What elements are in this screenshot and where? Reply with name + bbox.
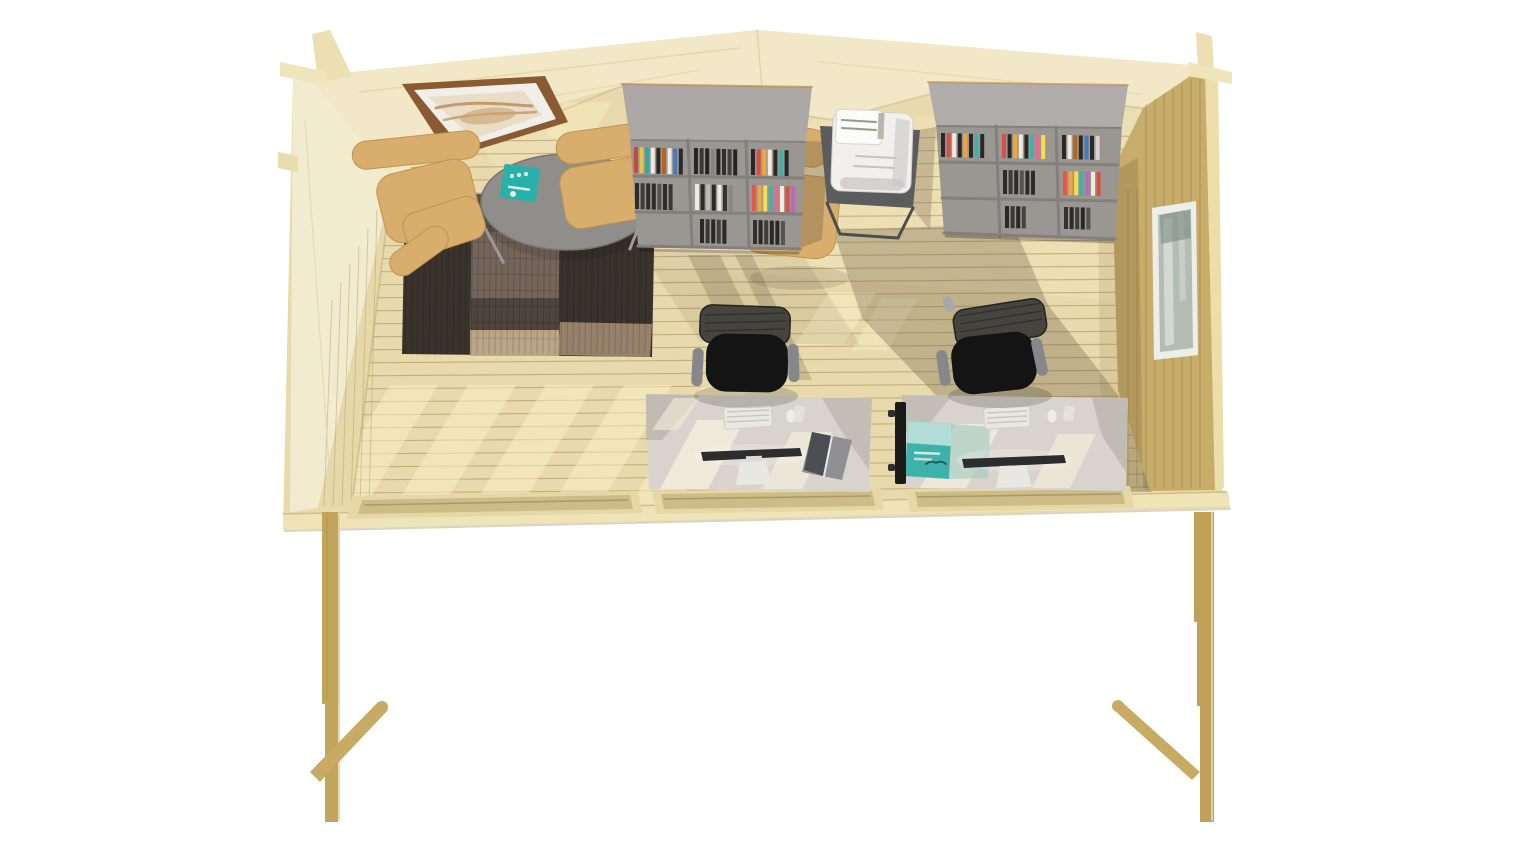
office-chair-seat (949, 330, 1039, 396)
book-spine (758, 185, 762, 211)
book-spine (980, 134, 984, 158)
book-spine (1005, 206, 1009, 228)
book-spine (1070, 207, 1074, 229)
mouse (1048, 410, 1057, 423)
window-glass-dark-top (1160, 210, 1191, 244)
book-row (1064, 207, 1090, 230)
book-spine (701, 184, 705, 210)
book-spine (733, 149, 737, 175)
book-spine (762, 149, 766, 175)
book-spine (773, 150, 777, 176)
office-chair-seat (706, 333, 789, 392)
office-chair-armrest (787, 344, 799, 382)
support-post-left-upper (322, 512, 340, 704)
book-spine (1016, 206, 1020, 228)
booklet-logo (510, 191, 516, 197)
book-spine (711, 219, 715, 243)
booklet-icon-dot (524, 172, 528, 176)
book-spine (790, 150, 794, 176)
book-row (700, 219, 726, 244)
book-spine (975, 134, 979, 158)
book-spine (679, 149, 683, 175)
book-row (695, 184, 733, 211)
book-spine (1014, 170, 1018, 194)
book-spine (640, 147, 644, 173)
book-row (634, 147, 683, 175)
front-window-sill-inner (661, 491, 875, 509)
book-spine (1031, 171, 1035, 195)
book-spine (641, 183, 645, 209)
book-spine (646, 183, 650, 209)
printer-bottom-shade (840, 177, 904, 191)
divider-foot (888, 464, 895, 471)
book-spine (729, 185, 733, 211)
shelf-board (634, 176, 803, 178)
book-spine (1025, 171, 1029, 195)
book-spine (781, 221, 785, 245)
book-spine (645, 147, 649, 173)
book-row (1063, 171, 1101, 196)
book-spine (774, 186, 778, 212)
book-spine (1036, 135, 1040, 159)
book-spine (695, 184, 699, 210)
book-spine (752, 185, 756, 211)
booklet-icon-dot (517, 173, 521, 177)
book-spine (1091, 172, 1095, 196)
render-viewport (0, 0, 1536, 864)
book-spine (1084, 136, 1088, 160)
scene-svg (0, 0, 1536, 864)
book-spine (722, 220, 726, 244)
book-spine (705, 148, 709, 174)
book-spine (656, 148, 660, 174)
book-spine (711, 149, 715, 175)
shelf-right-top (928, 82, 1128, 127)
office-chair-armrest (691, 348, 704, 387)
book-spine (969, 134, 973, 158)
book-spine (700, 219, 704, 243)
book-spine (634, 147, 638, 173)
book-spine (1041, 135, 1045, 159)
brace-tip (1112, 700, 1124, 712)
book-spine (1019, 134, 1023, 158)
book-row (1062, 135, 1100, 160)
printer-top-unit (835, 109, 882, 145)
rug-corner-light (558, 322, 652, 357)
book-spine (706, 184, 710, 210)
book-spine (791, 186, 795, 212)
book-spine (1069, 171, 1073, 195)
book-spine (1011, 206, 1015, 228)
book-spine (753, 220, 757, 244)
book-row (635, 183, 673, 210)
book-spine (728, 149, 732, 175)
rug-band-dark (471, 298, 559, 332)
book-spine (769, 186, 773, 212)
book-spine (1081, 207, 1085, 229)
book-spine (1008, 134, 1012, 158)
book-spine (723, 185, 727, 211)
book-spine (1020, 170, 1024, 194)
book-spine (662, 148, 666, 174)
book-spine (1068, 135, 1072, 159)
booklet-icon-dot (510, 174, 514, 178)
printer-side-vent (878, 113, 885, 139)
book-spine (1022, 206, 1026, 228)
book-spine (717, 185, 721, 211)
book-spine (1079, 135, 1083, 159)
shelf-board (636, 212, 801, 214)
book-spine (764, 220, 768, 244)
book-spine (706, 219, 710, 243)
book-spine (663, 184, 667, 210)
book-spine (779, 150, 783, 176)
book-spine (770, 221, 774, 245)
book-spine (635, 183, 639, 209)
book-spine (716, 149, 720, 175)
book-spine (952, 133, 956, 157)
book-spine (1009, 170, 1013, 194)
book-spine (652, 184, 656, 210)
shelf-left-top (622, 84, 812, 141)
front-window-sill-inner (915, 489, 1125, 507)
book-spine (1080, 171, 1084, 195)
book-spine (673, 148, 677, 174)
book-spine (780, 186, 784, 212)
book-spine (763, 185, 767, 211)
book-spine (963, 134, 967, 158)
monitor-stand (736, 461, 772, 485)
book-spine (786, 186, 790, 212)
book-spine (785, 150, 789, 176)
book-spine (1090, 136, 1094, 160)
book-spine (1097, 172, 1101, 196)
book-spine (694, 148, 698, 174)
book-spine (775, 221, 779, 245)
book-spine (668, 148, 672, 174)
chair-shadow (750, 266, 850, 290)
book-spine (1085, 172, 1089, 196)
poster-sky-half (907, 421, 952, 446)
book-spine (1030, 135, 1034, 159)
book-spine (1064, 207, 1068, 229)
book-spine (1024, 135, 1028, 159)
divider-foot (888, 410, 895, 417)
book-spine (941, 133, 945, 157)
brace-tip (376, 701, 388, 713)
book-spine (669, 184, 673, 210)
book-spine (1013, 134, 1017, 158)
book-spine (1062, 135, 1066, 159)
book-spine (1003, 170, 1007, 194)
notepad (1063, 405, 1075, 421)
book-spine (717, 220, 721, 244)
book-spine (757, 149, 761, 175)
book-spine (657, 184, 661, 210)
book-spine (712, 185, 716, 211)
book-spine (751, 149, 755, 175)
book-spine (700, 148, 704, 174)
book-spine (947, 133, 951, 157)
book-spine (722, 149, 726, 175)
book-spine (759, 220, 763, 244)
book-spine (1086, 208, 1090, 230)
book-spine (1073, 135, 1077, 159)
book-spine (768, 150, 772, 176)
monitor-stand (996, 465, 1032, 488)
book-spine (1074, 171, 1078, 195)
book-spine (1002, 134, 1006, 158)
book-spine (1063, 171, 1067, 195)
book-spine (1096, 136, 1100, 160)
teal-booklet (500, 164, 540, 203)
book-spine (958, 133, 962, 157)
book-spine (651, 148, 655, 174)
book-spine (1075, 207, 1079, 229)
divider-board (895, 402, 906, 484)
